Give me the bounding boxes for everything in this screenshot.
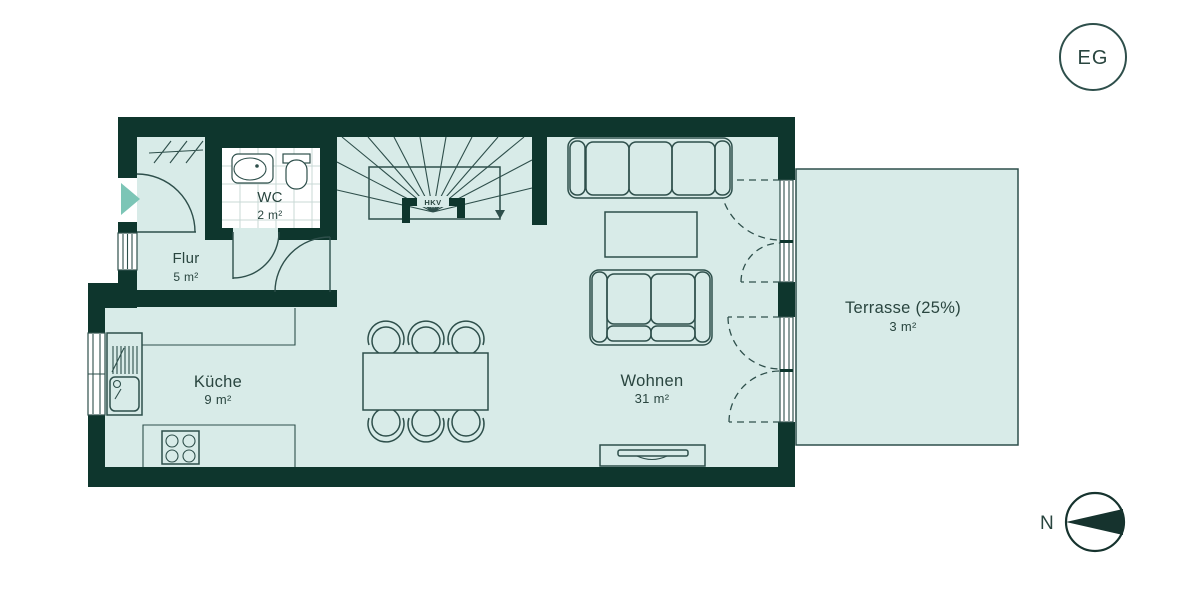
kitchen-window <box>88 333 105 415</box>
toilet <box>283 154 310 189</box>
terrace-window-lower <box>780 317 793 422</box>
label-wohnen-name: Wohnen <box>621 372 684 390</box>
floorplan-canvas: HKV <box>0 0 1200 600</box>
entry-side-window <box>118 233 137 270</box>
label-wohnen-area: 31 m² <box>635 391 670 406</box>
floor-level-label: EG <box>1078 47 1109 69</box>
coffee-table <box>605 212 697 257</box>
tv-sideboard <box>600 445 705 466</box>
floorplan-page: HKV <box>0 0 1200 600</box>
label-kueche-area: 9 m² <box>204 392 232 407</box>
entrance <box>118 178 140 222</box>
label-kueche-name: Küche <box>194 373 242 391</box>
compass-north-label: N <box>1040 513 1054 534</box>
compass: N <box>1040 493 1124 551</box>
washbasin <box>232 154 273 183</box>
label-wc-area: 2 m² <box>257 208 282 222</box>
label-terrasse-name: Terrasse (25%) <box>845 299 961 317</box>
label-flur-area: 5 m² <box>173 270 198 284</box>
label-flur-name: Flur <box>172 250 199 267</box>
hkv-label: HKV <box>424 198 441 207</box>
dining-table <box>363 353 488 410</box>
label-terrasse-area: 3 m² <box>889 319 917 334</box>
floor-level-badge: EG <box>1060 24 1126 90</box>
sofa-three-seater <box>568 138 732 198</box>
label-wc-name: WC <box>257 189 283 206</box>
terrace-window-upper <box>780 180 793 282</box>
sofa-two-seater <box>590 270 712 345</box>
